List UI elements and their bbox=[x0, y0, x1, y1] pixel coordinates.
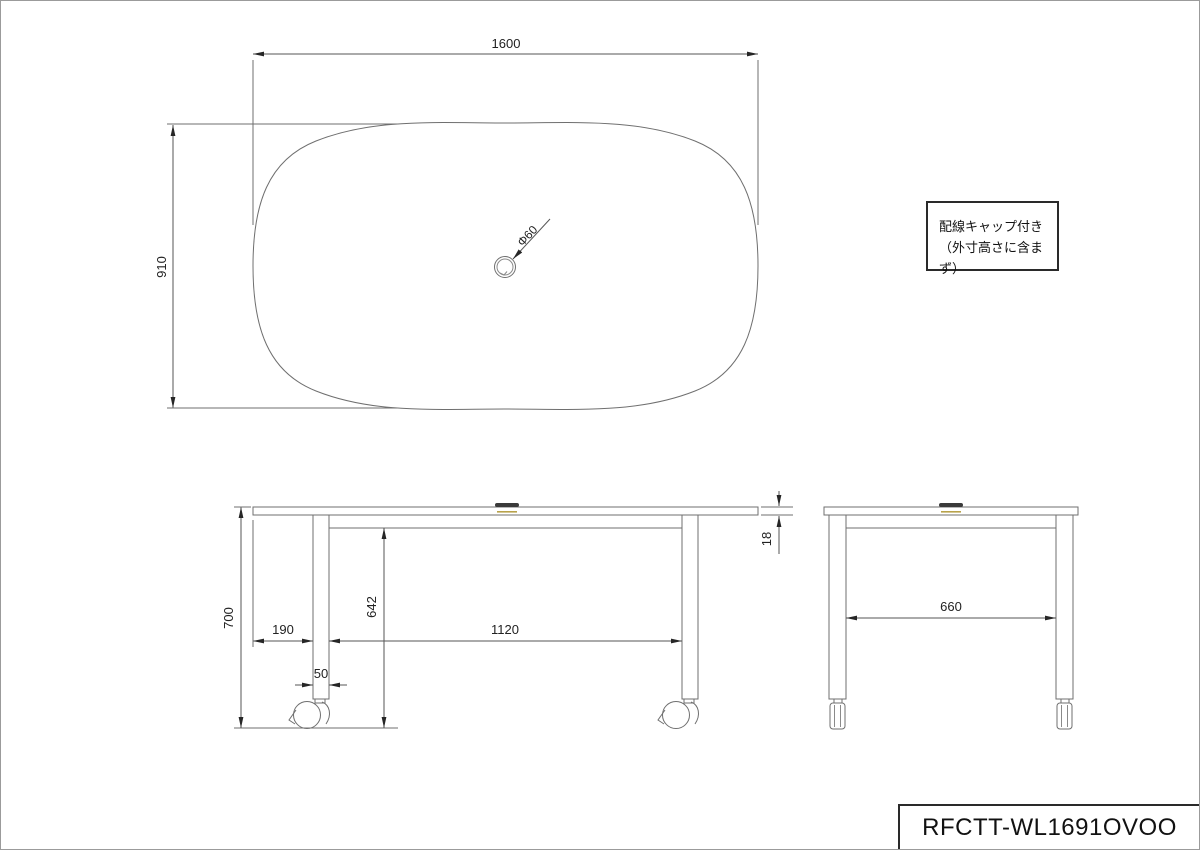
dim-leg-span-label: 1120 bbox=[491, 622, 519, 637]
caster-mount bbox=[1061, 699, 1069, 703]
caster-fork bbox=[322, 702, 329, 724]
caster-body bbox=[830, 703, 845, 729]
side-cable-cap-accent bbox=[941, 511, 961, 513]
front-right-caster bbox=[658, 699, 698, 729]
dim-depth-label: 910 bbox=[154, 256, 169, 278]
side-left-caster bbox=[830, 699, 845, 729]
note-line-1: 配線キャップ付き bbox=[939, 216, 1057, 237]
front-left-caster bbox=[289, 699, 329, 729]
hole-diameter-label: Φ60 bbox=[514, 222, 540, 249]
front-view: 700 642 190 1120 50 18 bbox=[221, 491, 793, 729]
side-view: 660 bbox=[824, 503, 1078, 729]
caster-body bbox=[1057, 703, 1072, 729]
dim-leg-width-label: 50 bbox=[314, 666, 328, 681]
dim-side-leg-span-label: 660 bbox=[940, 599, 962, 614]
caster-mount bbox=[834, 699, 842, 703]
caster-wheel bbox=[663, 702, 690, 729]
front-cable-cap-accent bbox=[497, 511, 517, 513]
side-left-leg bbox=[829, 515, 846, 699]
caster-fork bbox=[691, 702, 698, 724]
drawing-page: Φ60 1600 910 bbox=[0, 0, 1200, 850]
dim-underside-label: 642 bbox=[364, 596, 379, 618]
note-line-2: （外寸高さに含まず） bbox=[939, 237, 1057, 279]
model-number: RFCTT-WL1691OVOO bbox=[922, 814, 1177, 842]
technical-drawing-canvas: Φ60 1600 910 bbox=[1, 1, 1200, 850]
dim-width-label: 1600 bbox=[492, 36, 521, 51]
title-block: RFCTT-WL1691OVOO bbox=[898, 804, 1200, 850]
side-right-caster bbox=[1057, 699, 1072, 729]
dim-height-label: 700 bbox=[221, 607, 236, 629]
dim-edge-to-leg-label: 190 bbox=[272, 622, 294, 637]
side-cable-cap bbox=[939, 503, 963, 507]
wiring-cap-note-box: 配線キャップ付き （外寸高さに含まず） bbox=[926, 201, 1059, 271]
caster-wheel bbox=[294, 702, 321, 729]
front-right-leg bbox=[682, 515, 698, 699]
tabletop-outline bbox=[253, 123, 758, 410]
top-view: Φ60 1600 910 bbox=[154, 36, 758, 409]
front-cable-cap bbox=[495, 503, 519, 507]
dim-thickness-label: 18 bbox=[759, 532, 774, 546]
cable-hole-inner bbox=[497, 259, 513, 275]
side-right-leg bbox=[1056, 515, 1073, 699]
